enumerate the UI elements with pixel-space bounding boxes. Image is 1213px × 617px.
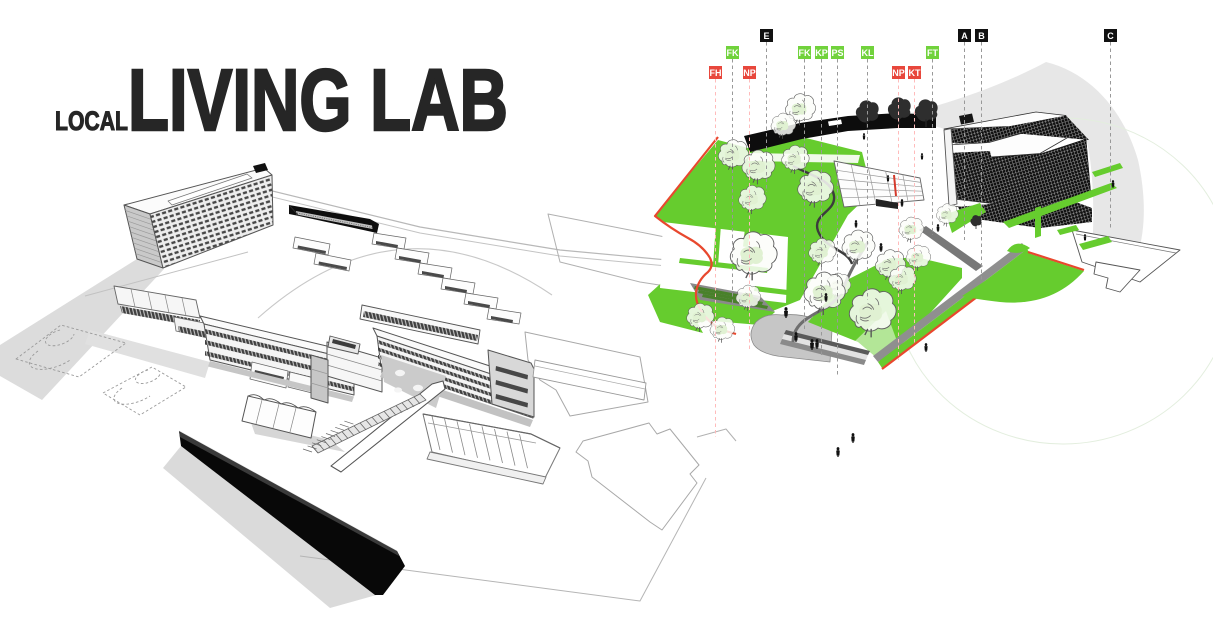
svg-text:LIVING LAB: LIVING LAB xyxy=(128,52,508,149)
svg-text:NP: NP xyxy=(892,68,905,78)
svg-text:FK: FK xyxy=(799,48,811,58)
svg-text:NP: NP xyxy=(743,68,756,78)
svg-text:KP: KP xyxy=(815,48,828,58)
svg-text:FT: FT xyxy=(927,48,938,58)
svg-text:E: E xyxy=(763,31,769,41)
svg-text:A: A xyxy=(961,31,968,41)
svg-text:FH: FH xyxy=(710,68,722,78)
svg-text:KT: KT xyxy=(909,68,921,78)
svg-text:PS: PS xyxy=(831,48,843,58)
svg-text:C: C xyxy=(1107,31,1114,41)
svg-text:LOCAL: LOCAL xyxy=(55,106,128,136)
svg-text:KL: KL xyxy=(862,48,874,58)
svg-text:B: B xyxy=(978,31,985,41)
svg-text:FK: FK xyxy=(727,48,739,58)
